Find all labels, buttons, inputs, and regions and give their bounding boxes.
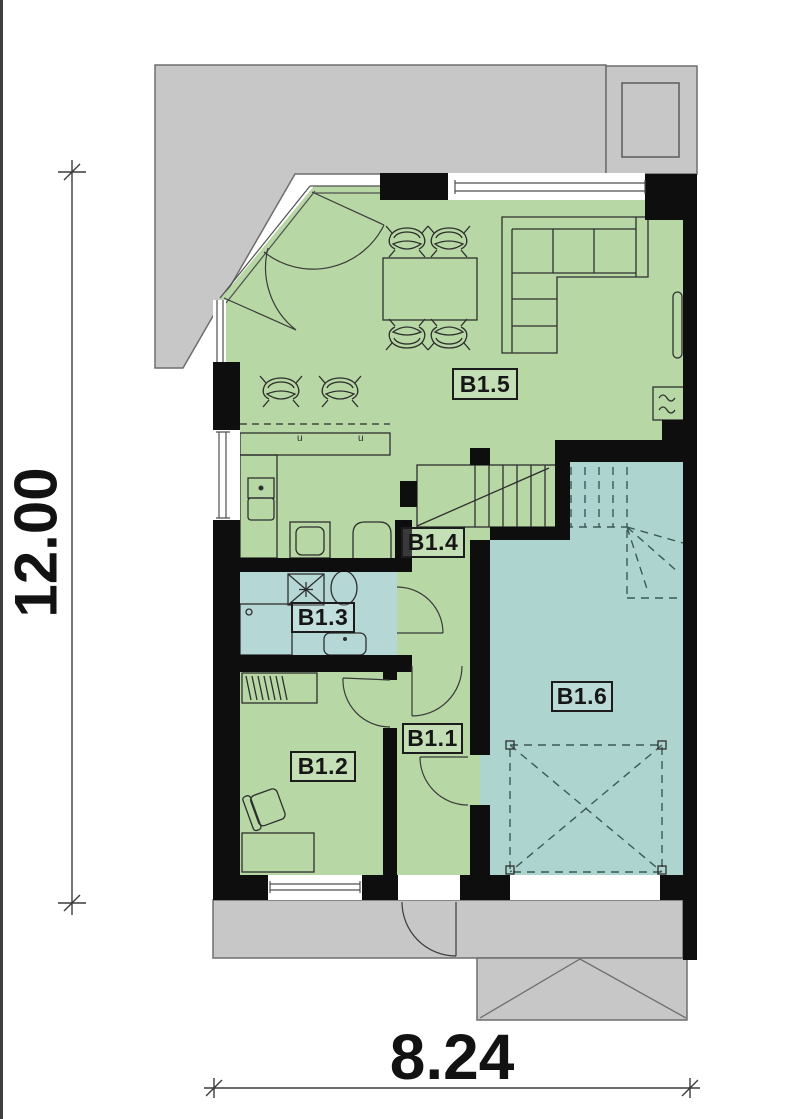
window-bedroom [268, 875, 362, 900]
room-label-b1-6: B1.6 [551, 681, 613, 712]
room-label-text: B1.3 [298, 604, 349, 631]
room-label-text: B1.4 [408, 529, 459, 556]
room-label-b1-4: B1.4 [401, 527, 465, 558]
dimension-height: 12.00 [2, 443, 71, 643]
counter-mark: u [358, 433, 364, 444]
room-label-text: B1.6 [557, 683, 608, 710]
front-door-opening [398, 875, 460, 900]
room-label-b1-1: B1.1 [402, 723, 463, 754]
entry-walkway [213, 900, 683, 958]
garage-door-opening [510, 875, 660, 900]
window-left [213, 430, 240, 520]
room-label-b1-3: B1.3 [291, 602, 355, 633]
room-label-b1-5: B1.5 [452, 368, 518, 400]
room-label-text: B1.1 [407, 725, 458, 752]
room-label-b1-2: B1.2 [290, 751, 356, 782]
floor-plan-canvas: u u [0, 0, 800, 1119]
counter-mark: u [297, 433, 303, 444]
room-label-text: B1.2 [298, 753, 349, 780]
driveway-canopy [477, 958, 687, 1020]
skylight-icon [622, 83, 679, 157]
roof-canopy [606, 66, 697, 174]
floor-plan-drawing: u u [0, 0, 800, 1119]
window-living [448, 173, 645, 200]
room-label-text: B1.5 [460, 371, 511, 398]
dimension-width: 8.24 [352, 1020, 552, 1094]
